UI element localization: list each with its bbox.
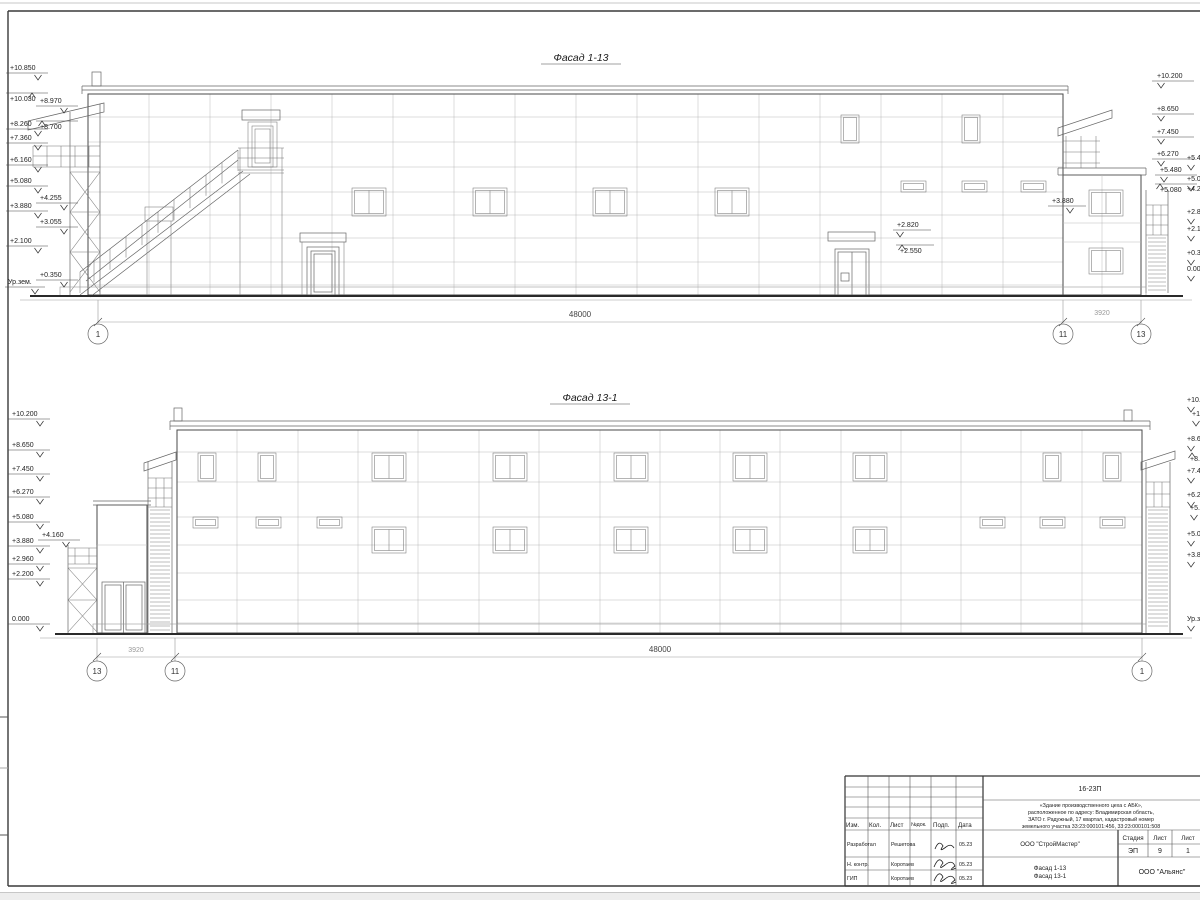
sheets-label: Лист	[1181, 835, 1195, 842]
sheet-title-1: Фасад 1-13	[1034, 865, 1067, 872]
annex-11-13	[1058, 110, 1168, 295]
svg-text:+5.480: +5.480	[1160, 167, 1182, 174]
facade-13-1-title: Фасад 13-1	[562, 392, 617, 404]
svg-text:+6.270: +6.270	[12, 489, 34, 496]
svg-text:+2.100: +2.100	[10, 238, 32, 245]
elevation-marks-left-top: +10.850 +10.030 +8.970 +8.260 +8.700 +7.…	[5, 65, 78, 294]
axis-13-bottom: 13	[93, 667, 102, 676]
svg-text:+8.970: +8.970	[40, 98, 62, 105]
svg-text:+3.880: +3.880	[1187, 552, 1200, 559]
dimensions-top: 48000 3920 1 11 13	[88, 300, 1151, 344]
svg-text:+8.650: +8.650	[12, 442, 34, 449]
ground-line-top	[20, 287, 1192, 300]
blueprint-page: Фасад 1-13	[0, 0, 1200, 900]
svg-text:+8.650: +8.650	[1187, 436, 1200, 443]
signatures	[934, 843, 956, 883]
svg-text:+10.200: +10.200	[12, 411, 38, 418]
svg-text:+7.360: +7.360	[10, 135, 32, 142]
row1-date: 05.23	[959, 862, 972, 868]
row2-name: Коротаев	[891, 876, 914, 882]
svg-text:0.000: 0.000	[1187, 266, 1200, 273]
axis-1-top: 1	[96, 330, 101, 339]
facade-1-13-title: Фасад 1-13	[553, 52, 608, 64]
designer-company: ООО "СтройМастер"	[1020, 841, 1080, 848]
col-ndok: №док.	[911, 822, 927, 828]
svg-text:+2.100: +2.100	[1187, 226, 1200, 233]
facade-13-1: Фасад 13-1	[8, 392, 1200, 681]
svg-text:+8.260: +8.260	[10, 121, 32, 128]
entrance-door	[835, 249, 869, 295]
col-list: Лист	[890, 822, 904, 829]
annex-left	[68, 452, 176, 633]
svg-text:+8.700: +8.700	[40, 124, 62, 131]
title-block: Изм. Кол. Лист №док. Подп. Дата Разработ…	[845, 776, 1200, 886]
svg-text:+4.160: +4.160	[42, 532, 64, 539]
row0-role: Разработал	[847, 842, 876, 848]
svg-text:Ур.зем.: Ур.зем.	[8, 279, 32, 286]
contractor-company: ООО "Альянс"	[1139, 869, 1186, 876]
revision-table: Изм. Кол. Лист №док. Подп. Дата Разработ…	[845, 776, 983, 886]
col-data: Дата	[958, 822, 972, 829]
axis-11-bottom: 11	[171, 667, 180, 676]
elevation-marks-edge-bottom: +10.200 +10.030 +8.650 +8.450 +7.450 +6.…	[1187, 397, 1200, 631]
svg-text:0.000: 0.000	[12, 616, 30, 623]
svg-text:+2.960: +2.960	[12, 556, 34, 563]
dim-3920-top: 3920	[1094, 310, 1110, 317]
dim-48000-top: 48000	[569, 310, 592, 319]
svg-text:+6.270: +6.270	[1157, 151, 1179, 158]
facade-1-13: Фасад 1-13	[5, 52, 1200, 344]
ground-line-bottom	[40, 624, 1192, 638]
annex-double-door	[102, 582, 145, 633]
svg-text:+10.030: +10.030	[10, 96, 36, 103]
ladder-right	[1141, 451, 1175, 633]
row2-role: ГИП	[847, 876, 858, 882]
svg-text:+4.255: +4.255	[40, 195, 62, 202]
svg-text:+8.650: +8.650	[1157, 106, 1179, 113]
dim-48000-bottom: 48000	[649, 645, 672, 654]
svg-text:Ур.зем.: Ур.зем.	[1187, 616, 1200, 623]
entrance-canopy	[828, 232, 875, 241]
svg-text:+5.480: +5.480	[1187, 155, 1200, 162]
elevation-marks-left-bottom: +10.200 +8.650 +7.450 +6.270 +5.080 +3.8…	[8, 411, 80, 631]
svg-text:+0.350: +0.350	[40, 272, 62, 279]
svg-text:+3.055: +3.055	[40, 219, 62, 226]
facade-drawing-canvas: Фасад 1-13	[0, 0, 1200, 900]
stage-value: ЭП	[1128, 848, 1138, 855]
svg-text:+10.850: +10.850	[10, 65, 36, 72]
stage-label: Стадия	[1122, 835, 1143, 842]
sheet-title-2: Фасад 13-1	[1034, 873, 1067, 880]
col-podp: Подп.	[933, 822, 950, 829]
row2-date: 05.23	[959, 876, 972, 882]
side-door	[307, 247, 339, 295]
desc-line-3: ЗАТО г. Радужный, 17 квартал, кадастровы…	[1028, 816, 1154, 823]
svg-text:+0.350: +0.350	[1187, 250, 1200, 257]
svg-text:+3.880: +3.880	[1052, 198, 1074, 205]
doc-number: 16-23П	[1079, 786, 1102, 793]
col-kol: Кол.	[869, 822, 882, 829]
sheet-value: 9	[1158, 848, 1162, 855]
svg-text:+7.450: +7.450	[1187, 468, 1200, 475]
stamp-right: 16-23П «Здание производственного цеха с …	[983, 786, 1200, 880]
svg-text:+2.820: +2.820	[1187, 209, 1200, 216]
svg-text:+2.550: +2.550	[900, 248, 922, 255]
axis-1-bottom: 1	[1140, 667, 1145, 676]
svg-text:+10.030: +10.030	[1192, 411, 1200, 418]
desc-line-4: земельного участка 33:23:000101:456, 33:…	[1022, 824, 1160, 830]
svg-text:+7.450: +7.450	[12, 466, 34, 473]
external-stair	[28, 103, 284, 297]
svg-text:+10.200: +10.200	[1187, 397, 1200, 404]
svg-text:+5.080: +5.080	[10, 178, 32, 185]
desc-line-2: расположенное по адресу: Владимирская об…	[1028, 810, 1154, 816]
svg-text:+3.880: +3.880	[10, 203, 32, 210]
desc-line-1: «Здание производственного цеха с АБК»,	[1040, 803, 1143, 809]
elevation-marks-inner-top: +3.880 +2.820 +2.550	[893, 198, 1086, 255]
side-door-canopy	[300, 233, 346, 242]
svg-text:+5.080: +5.080	[12, 514, 34, 521]
sheet-label: Лист	[1153, 835, 1167, 842]
svg-text:+10.200: +10.200	[1157, 73, 1183, 80]
svg-text:+2.200: +2.200	[12, 571, 34, 578]
svg-text:+5.080: +5.080	[1187, 531, 1200, 538]
svg-text:+6.270: +6.270	[1187, 492, 1200, 499]
facade-13-1-openings	[193, 453, 1125, 553]
axis-11-top: 11	[1059, 330, 1068, 339]
elevation-marks-edge-top: +5.480 +5.080 +4.255 +2.820 +2.100 +0.35…	[1187, 155, 1200, 281]
row0-date: 05.23	[959, 842, 972, 848]
svg-text:+4.255: +4.255	[1187, 186, 1200, 193]
svg-text:+5.480: +5.480	[1190, 505, 1200, 512]
col-izm: Изм.	[846, 822, 860, 829]
svg-text:+5.080: +5.080	[1187, 176, 1200, 183]
row1-role: Н. контр.	[847, 862, 869, 868]
dim-3920-bottom: 3920	[128, 647, 144, 654]
svg-text:+6.160: +6.160	[10, 157, 32, 164]
svg-text:+2.820: +2.820	[897, 222, 919, 229]
axis-13-top: 13	[1137, 330, 1146, 339]
svg-text:+7.450: +7.450	[1157, 129, 1179, 136]
sheets-value: 1	[1186, 848, 1190, 855]
row1-name: Коротаев	[891, 862, 914, 868]
row0-name: Решетова	[891, 842, 915, 848]
dimensions-bottom: 3920 48000 13 11 1	[87, 638, 1152, 681]
svg-text:+3.880: +3.880	[12, 538, 34, 545]
